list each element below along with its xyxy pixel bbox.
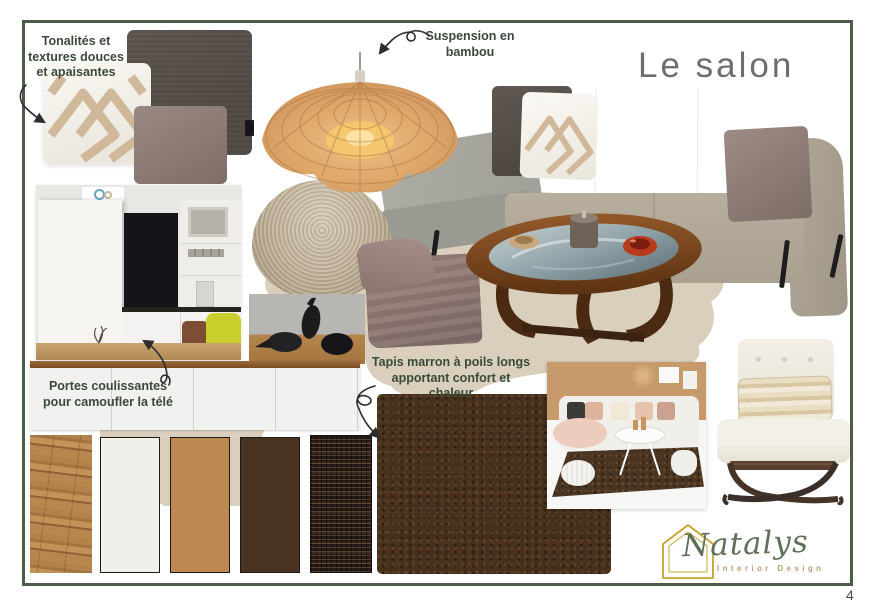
moodboard-page: { "page": { "title": "Le salon", "number… <box>0 0 877 606</box>
curly-arrow-lamp-icon <box>372 28 432 60</box>
annotation-lamp: Suspension en bambou <box>424 29 516 60</box>
annotation-pillows: Tonalités et textures douces et apaisant… <box>26 34 126 81</box>
curly-arrow-rug-icon <box>350 384 390 444</box>
annotation-rug: Tapis marron à poils longs apportant con… <box>368 355 534 402</box>
curly-arrow-pillows-icon <box>16 82 54 128</box>
page-number: 4 <box>846 587 854 603</box>
curly-arrow-tv-icon <box>136 336 174 388</box>
brand-subtitle: Interior Design <box>717 564 824 573</box>
page-border-frame <box>22 20 853 586</box>
brand-name: Natalys <box>681 524 809 564</box>
brand-logo: Natalys Interior Design <box>660 518 865 584</box>
